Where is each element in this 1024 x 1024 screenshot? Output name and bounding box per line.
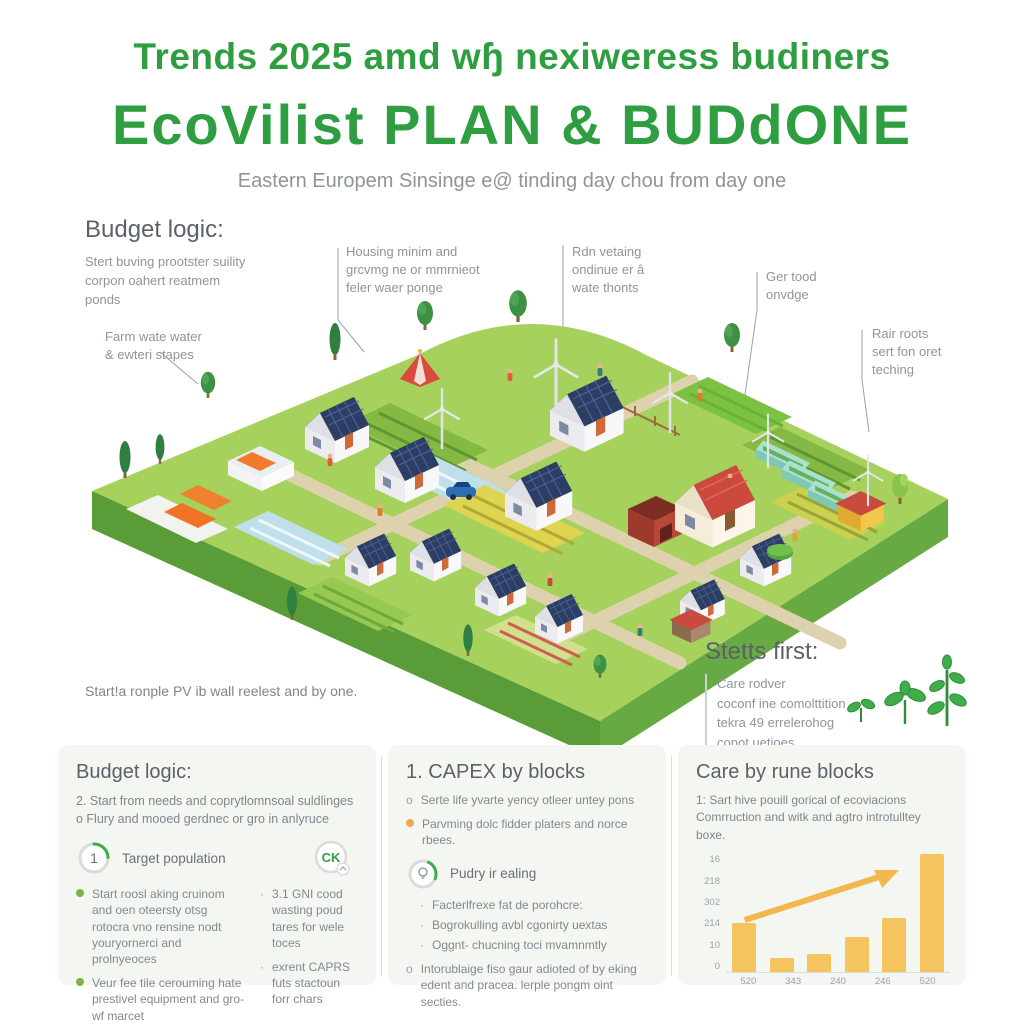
- budget-bullet-text: Start roosl aking cruinom and oen oteers…: [92, 886, 246, 967]
- illustration-caption: Start!a ronple PV ib wall reelest and by…: [85, 683, 357, 699]
- seedling-growth-icons: [843, 652, 968, 730]
- person-figure: [728, 474, 733, 486]
- tree-icon: [330, 323, 341, 360]
- bar: [882, 918, 906, 972]
- chevron-up-icon: [337, 863, 349, 875]
- person-figure: [378, 504, 383, 516]
- person-figure: [638, 624, 643, 636]
- bar-chart: 16218302214100: [696, 854, 950, 973]
- bar: [845, 937, 869, 972]
- budget-side-bullet: · 3.1 GNI cood wasting poud tares for we…: [260, 886, 360, 951]
- panel-budget-heading: Budget logic:: [76, 761, 360, 784]
- tree-icon: [417, 301, 433, 330]
- care-body: 1: Sart hive pouill gorical of ecoviacio…: [696, 792, 950, 844]
- y-tick-label: 302: [704, 897, 720, 908]
- bullet-marker: o: [406, 792, 413, 808]
- stetts-heading: Stetts first:: [705, 638, 855, 666]
- chart-plot: [726, 854, 950, 973]
- x-tick-label: 520: [920, 976, 936, 987]
- title-line-1: Trends 2025 amd wɧ nexiweress budiners: [0, 36, 1024, 78]
- bullet-marker: ·: [260, 959, 264, 1008]
- bar: [920, 854, 944, 972]
- budget-bullet: Start roosl aking cruinom and oen oteers…: [76, 886, 246, 967]
- bullet-marker: o: [406, 961, 413, 1010]
- stetts-line: tekra 49 errelerohog: [717, 713, 855, 733]
- seedling-stage-1-icon: [846, 697, 876, 722]
- bar: [732, 923, 756, 973]
- capex-bullet: Parvming dolc fidder platers and norce r…: [406, 816, 650, 848]
- capex-final-bullet: o Intorublaige fiso gaur adioted of by e…: [406, 961, 650, 1010]
- stetts-line: coconf ine comolttition: [717, 694, 855, 714]
- bulb-circle: [406, 857, 440, 891]
- panel-capex: 1. CAPEX by blocks o Serte life yvarte y…: [388, 745, 666, 985]
- person-figure: [698, 389, 703, 401]
- capex-sub-bullet: · Oggnt- chucning toci mvamnmtly: [420, 937, 650, 953]
- bullet-dot-icon: [76, 889, 84, 897]
- panel-care: Care by rune blocks 1: Sart hive pouill …: [678, 745, 966, 985]
- stetts-lines: Care rodver coconf ine comolttition tekr…: [705, 674, 855, 752]
- step-circle-1: 1: [76, 840, 112, 876]
- title-line-2: EcoVilist PLAN & BUDdONE: [0, 92, 1024, 157]
- budget-side-text: exrent CAPRS futs stactoun forr chars: [272, 959, 360, 1008]
- tree-icon: [120, 441, 131, 478]
- bullet-marker: ·: [260, 886, 264, 951]
- budget-bullet-text: Veur fee tile cerouming hate prestivel e…: [92, 975, 246, 1024]
- person-figure: [508, 369, 513, 381]
- top-left-heading: Budget logic:: [85, 216, 345, 244]
- bullet-marker: ·: [420, 917, 424, 933]
- x-tick-label: 520: [740, 976, 756, 987]
- capex-sub-text: Bogrokulling avbl cgonirty uextas: [432, 917, 607, 933]
- step-number: 1: [90, 850, 98, 866]
- budget-intro-line: 2. Start from needs and coprytlomnsoal s…: [76, 792, 360, 810]
- tree-icon: [724, 323, 740, 352]
- tree-icon: [509, 290, 527, 322]
- step-label: Target population: [122, 851, 226, 866]
- y-tick-label: 214: [704, 918, 720, 929]
- budget-side-text: 3.1 GNI cood wasting poud tares for wele…: [272, 886, 360, 951]
- bar: [770, 958, 794, 972]
- person-figure: [548, 574, 553, 586]
- budget-side-bullet: · exrent CAPRS futs stactoun forr chars: [260, 959, 360, 1008]
- capex-sub-text: Facterlfrexe fat de porohcre:: [432, 897, 583, 913]
- person-figure: [328, 454, 333, 466]
- panel-divider: [381, 756, 382, 976]
- y-tick-label: 16: [709, 854, 720, 865]
- panel-capex-heading: 1. CAPEX by blocks: [406, 761, 650, 784]
- ck-badge-text: CK: [322, 850, 341, 865]
- budget-intro-line: o Flury and mooed gerdnec or gro in anly…: [76, 810, 360, 828]
- subtitle: Eastern Europem Sinsinge e@ tinding day …: [0, 170, 1024, 193]
- person-figure: [598, 364, 603, 376]
- seedling-stage-2-icon: [883, 681, 928, 724]
- panel-care-heading: Care by rune blocks: [696, 761, 950, 784]
- chart-x-labels: 520343240246520: [726, 976, 950, 987]
- person-figure: [793, 529, 798, 541]
- x-tick-label: 343: [785, 976, 801, 987]
- stetts-line: Care rodver: [717, 674, 855, 694]
- capex-sub-bullet: · Bogrokulling avbl cgonirty uextas: [420, 917, 650, 933]
- capex-sub-text: Oggnt- chucning toci mvamnmtly: [432, 937, 607, 953]
- bar: [807, 954, 831, 972]
- capex-bullet-text: Serte life yvarte yency otleer untey pon…: [421, 792, 634, 808]
- infographic-poster: Trends 2025 amd wɧ nexiweress budiners E…: [0, 0, 1024, 1024]
- bullet-dot-icon: [76, 978, 84, 986]
- tree-icon: [156, 434, 165, 464]
- y-tick-label: 0: [715, 961, 720, 972]
- chart-y-labels: 16218302214100: [696, 854, 720, 972]
- x-tick-label: 246: [875, 976, 891, 987]
- capex-bullet-text: Parvming dolc fidder platers and norce r…: [422, 816, 650, 848]
- pond-icon: [767, 544, 793, 560]
- seedling-stage-3-icon: [926, 655, 968, 726]
- chart-bars: [726, 854, 950, 972]
- bullet-dot-icon: [406, 819, 414, 827]
- panel-budget-logic: Budget logic: 2. Start from needs and co…: [58, 745, 376, 985]
- y-tick-label: 10: [709, 940, 720, 951]
- stetts-block: Stetts first: Care rodver coconf ine com…: [705, 638, 855, 752]
- panel-divider: [671, 756, 672, 976]
- ck-badge: CK: [312, 838, 352, 878]
- budget-bullet: Veur fee tile cerouming hate prestivel e…: [76, 975, 246, 1024]
- capex-bullet: o Serte life yvarte yency otleer untey p…: [406, 792, 650, 808]
- bullet-marker: ·: [420, 897, 424, 913]
- bullet-marker: ·: [420, 937, 424, 953]
- step-label: Pudry ir ealing: [450, 866, 536, 881]
- y-tick-label: 218: [704, 876, 720, 887]
- capex-final-text: Intorublaige fiso gaur adioted of by eki…: [421, 961, 650, 1010]
- capex-sub-bullet: · Facterlfrexe fat de porohcre:: [420, 897, 650, 913]
- x-tick-label: 240: [830, 976, 846, 987]
- tree-icon: [201, 372, 215, 398]
